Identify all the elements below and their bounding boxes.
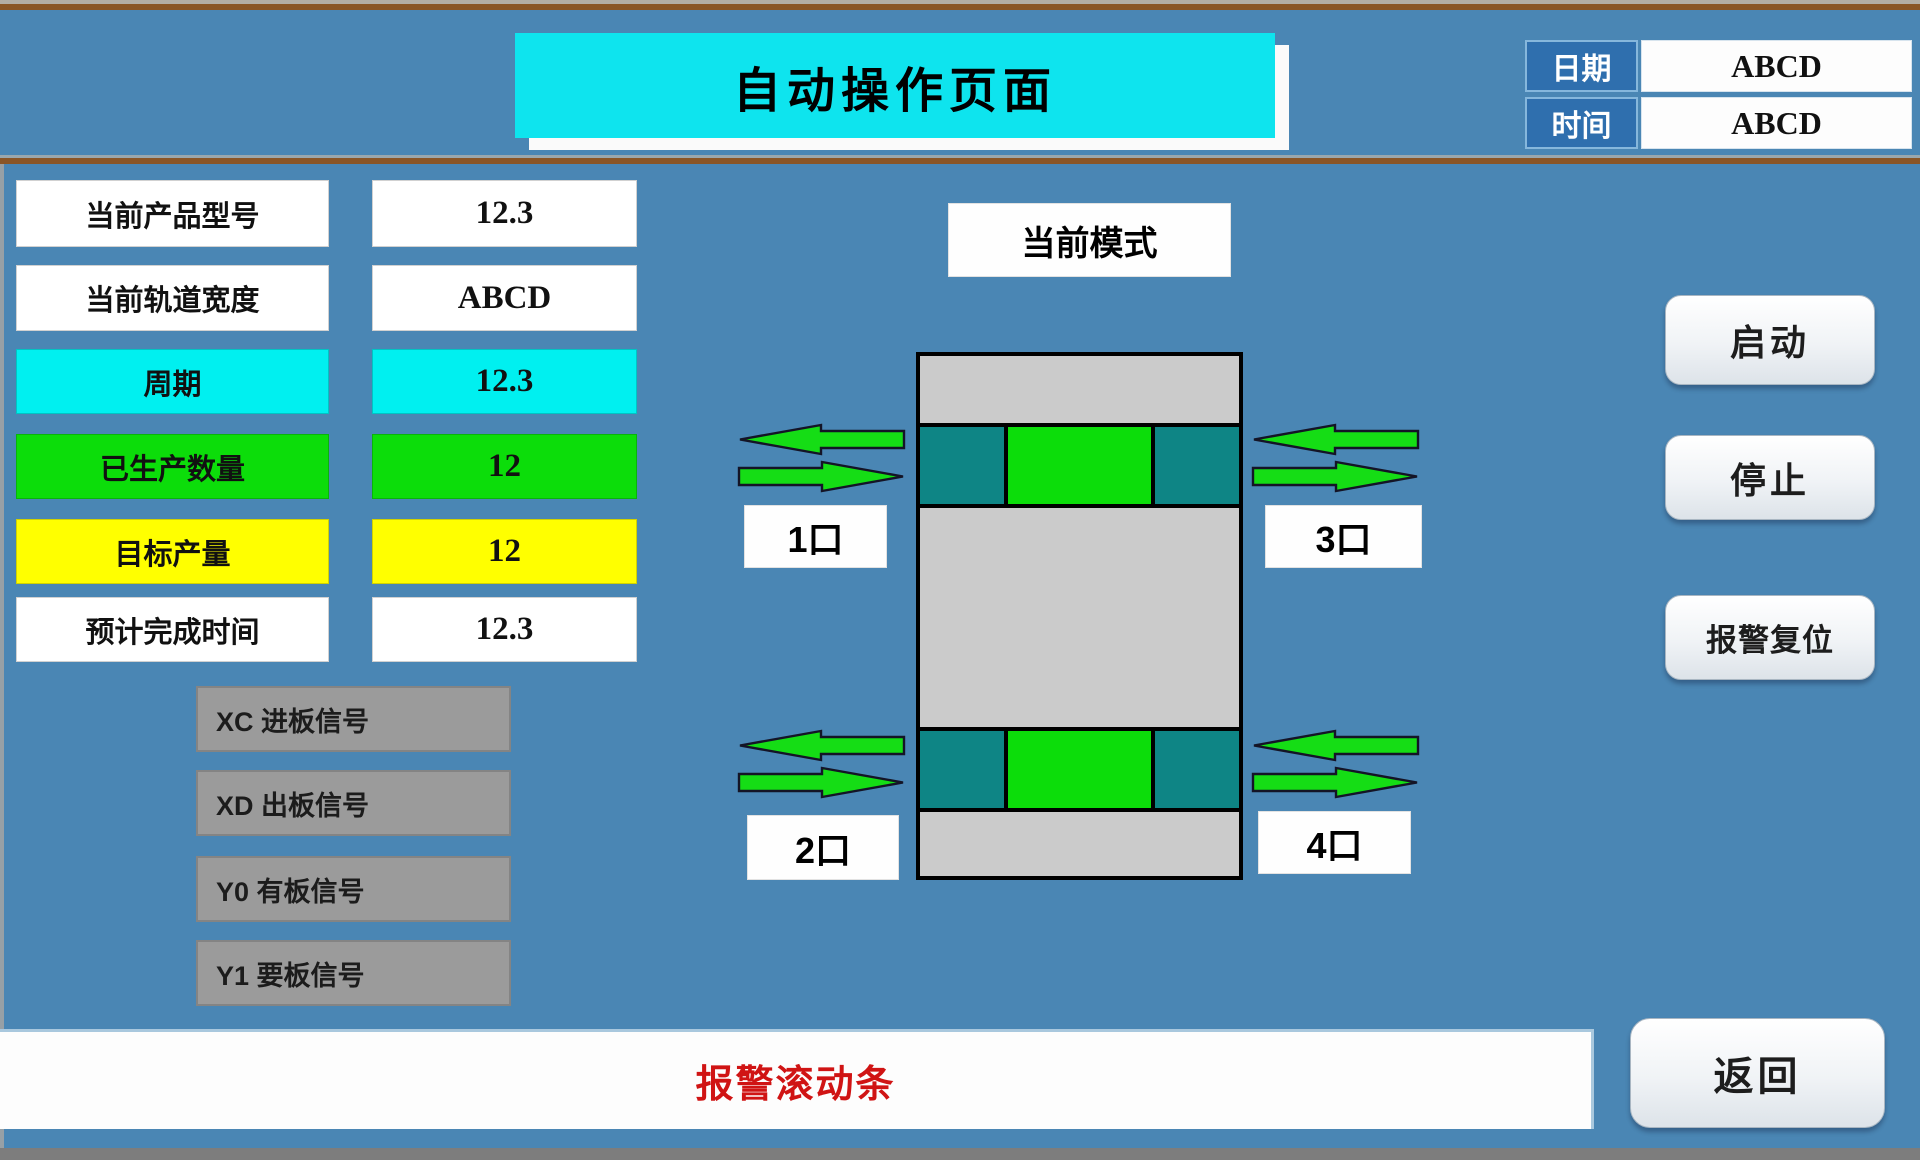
conveyor-bottom-right-block (1155, 731, 1239, 808)
cycle-value: 12.3 (372, 349, 637, 414)
conveyor-bottom-center-block (1004, 731, 1155, 808)
date-value: ABCD (1641, 40, 1912, 92)
alarm-marquee: 报警滚动条 (0, 1029, 1594, 1129)
port-3-label: 3口 (1265, 505, 1422, 568)
signal-xd-board-out: XD 出板信号 (196, 770, 511, 836)
track-width-value: ABCD (372, 265, 637, 331)
conveyor-bottom-left-block (920, 731, 1004, 808)
time-label: 时间 (1525, 97, 1638, 149)
alarm-reset-button[interactable]: 报警复位 (1665, 595, 1875, 680)
target-output-value: 12 (372, 519, 637, 584)
header-divider-line (0, 158, 1920, 164)
top-frame-line (0, 4, 1920, 10)
signal-xc-board-in: XC 进板信号 (196, 686, 511, 752)
produced-count-value: 12 (372, 434, 637, 499)
current-mode-label: 当前模式 (948, 203, 1231, 277)
est-finish-time-label: 预计完成时间 (16, 597, 329, 662)
est-finish-time-value: 12.3 (372, 597, 637, 662)
port-1-label: 1口 (744, 505, 887, 568)
conveyor-row-bottom (916, 727, 1243, 812)
signal-y0-board-present: Y0 有板信号 (196, 856, 511, 922)
flow-arrow-right-icon (738, 461, 905, 492)
back-button[interactable]: 返回 (1630, 1018, 1885, 1128)
port-2-label: 2口 (747, 815, 899, 880)
signal-y1-board-request: Y1 要板信号 (196, 940, 511, 1006)
hmi-screen: 自动操作页面 日期 ABCD 时间 ABCD 当前产品型号 当前轨道宽度 周期 … (0, 0, 1920, 1160)
track-width-label: 当前轨道宽度 (16, 265, 329, 331)
port-4-label: 4口 (1258, 811, 1411, 874)
conveyor-top-center-block (1004, 427, 1155, 504)
conveyor-row-top (916, 423, 1243, 508)
flow-arrow-right-icon (1252, 461, 1419, 492)
product-model-value: 12.3 (372, 180, 637, 247)
time-value: ABCD (1641, 97, 1912, 149)
cycle-label: 周期 (16, 349, 329, 414)
start-button[interactable]: 启动 (1665, 295, 1875, 385)
conveyor-top-right-block (1155, 427, 1239, 504)
produced-count-label: 已生产数量 (16, 434, 329, 499)
bottom-frame-strip (0, 1148, 1920, 1160)
flow-arrow-left-icon (738, 730, 905, 761)
target-output-label: 目标产量 (16, 519, 329, 584)
conveyor-top-left-block (920, 427, 1004, 504)
stop-button[interactable]: 停止 (1665, 435, 1875, 520)
flow-arrow-left-icon (738, 424, 905, 455)
flow-arrow-left-icon (1252, 730, 1419, 761)
flow-arrow-right-icon (1252, 767, 1419, 798)
date-label: 日期 (1525, 40, 1638, 92)
flow-arrow-right-icon (738, 767, 905, 798)
left-frame-strip (0, 164, 4, 1148)
page-title: 自动操作页面 (515, 33, 1275, 138)
flow-arrow-left-icon (1252, 424, 1419, 455)
product-model-label: 当前产品型号 (16, 180, 329, 247)
